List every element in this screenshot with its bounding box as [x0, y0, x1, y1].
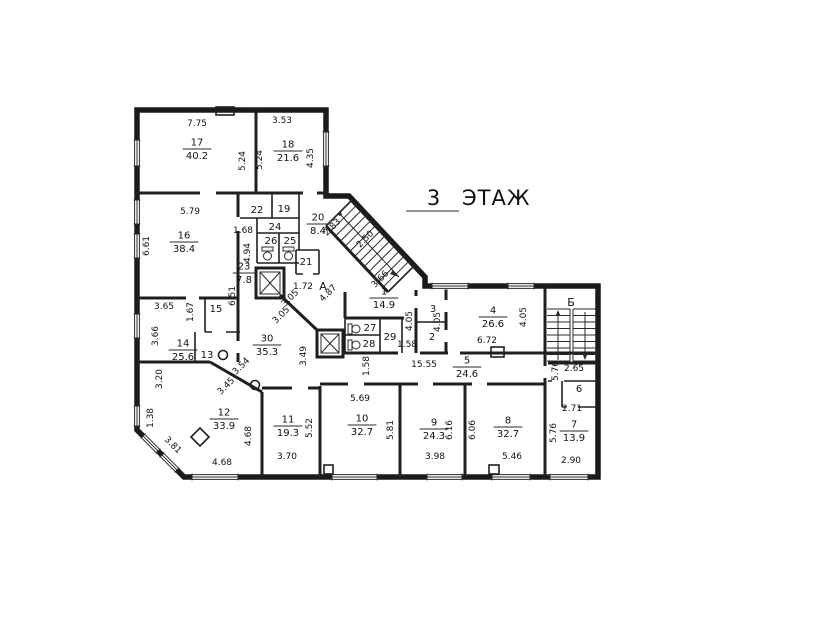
round-column — [219, 351, 228, 360]
dimension-label: 5.69 — [350, 394, 370, 404]
dimension-label: 4.05 — [519, 307, 529, 327]
toilet-icon — [348, 340, 360, 350]
room-number-6: 6 — [576, 384, 582, 395]
room-number-2: 2 — [429, 332, 435, 343]
floor-number: 3 — [427, 186, 441, 210]
room-label-10: 1032.7 — [348, 414, 377, 439]
svg-text:10: 10 — [356, 414, 369, 425]
room-label-1: 114.9 — [370, 287, 399, 312]
dimension-label: 5.46 — [502, 452, 522, 462]
svg-text:11: 11 — [282, 415, 295, 426]
dimension-label: 1.38 — [146, 408, 156, 428]
dimension-label: 1.72 — [293, 282, 313, 292]
svg-text:21.6: 21.6 — [277, 153, 299, 164]
dimension-label: 1.58 — [397, 340, 417, 350]
toilet-icon — [348, 324, 360, 334]
svg-text:4: 4 — [490, 306, 496, 317]
svg-text:8: 8 — [505, 416, 511, 427]
dimension-label: 6.61 — [142, 236, 152, 256]
room-number-21: 21 — [300, 257, 313, 268]
room-number-15: 15 — [210, 304, 223, 315]
pilaster — [489, 465, 499, 474]
toilet-icon — [262, 247, 273, 260]
svg-text:32.7: 32.7 — [351, 427, 373, 438]
svg-text:35.3: 35.3 — [256, 347, 278, 358]
room-number-28: 28 — [363, 339, 376, 350]
svg-text:24.3: 24.3 — [423, 431, 445, 442]
dimension-label: 6.16 — [445, 420, 455, 440]
dimension-label: 5.76 — [551, 361, 561, 381]
room-label-7: 713.9 — [560, 420, 589, 445]
dimension-label: 5.81 — [386, 420, 396, 440]
dimension-label: 6.06 — [468, 420, 478, 440]
drawing-title: 3 ЭТАЖ — [406, 186, 530, 211]
dimension-label: 5.52 — [305, 418, 315, 438]
dimension-label: 5.79 — [180, 207, 200, 217]
dimension-label: 1.68 — [233, 226, 253, 236]
room-label-8: 832.7 — [494, 416, 523, 441]
svg-text:33.9: 33.9 — [213, 421, 235, 432]
dimension-label: 7.75 — [187, 119, 207, 129]
svg-text:32.7: 32.7 — [497, 429, 519, 440]
dimension-label: 3.54 — [231, 356, 252, 377]
room-number-22: 22 — [251, 205, 264, 216]
toilet-icon — [283, 247, 294, 260]
svg-text:38.4: 38.4 — [173, 244, 195, 255]
dimension-label: 4.05 — [405, 311, 415, 331]
axis-letter-А: А — [319, 280, 327, 293]
svg-text:9: 9 — [431, 418, 437, 429]
svg-text:24.6: 24.6 — [456, 369, 478, 380]
room-label-4: 426.6 — [479, 306, 508, 331]
dimension-label: 3.49 — [299, 346, 309, 366]
room-label-23: 237.8 — [233, 262, 256, 287]
room-label-17: 1740.2 — [183, 138, 212, 163]
room-label-16: 1638.4 — [170, 231, 199, 256]
dimension-label: 3.45 — [216, 376, 237, 397]
room-number-29: 29 — [384, 332, 397, 343]
floor-plan-page: 3 ЭТАЖ 1740.21821.61638.4208.4237.81425.… — [0, 0, 823, 617]
svg-text:7: 7 — [571, 420, 577, 431]
dimension-label: 2.65 — [564, 364, 584, 374]
dimension-label: 3.05 — [271, 305, 292, 326]
svg-text:25.6: 25.6 — [172, 352, 194, 363]
dimension-label: 4.05 — [433, 312, 443, 332]
dimension-label: 3.70 — [277, 452, 297, 462]
dimension-label: 5.76 — [549, 423, 559, 443]
dimension-label: 5.24 — [255, 150, 265, 170]
dimension-label: 2.50 — [355, 229, 376, 250]
svg-text:13.9: 13.9 — [563, 433, 585, 444]
room-label-5: 524.6 — [453, 356, 482, 381]
dimension-label: 3.81 — [162, 435, 183, 456]
dimension-label: 3.20 — [155, 369, 165, 389]
svg-text:1: 1 — [381, 287, 387, 298]
svg-text:17: 17 — [191, 138, 204, 149]
dimension-label: 3.98 — [425, 452, 445, 462]
dimension-label: 3.66 — [151, 326, 161, 346]
dimension-label: 3.65 — [154, 302, 174, 312]
dimension-label: 6.51 — [228, 286, 238, 306]
axis-letter-Б: Б — [567, 296, 575, 309]
svg-text:18: 18 — [282, 140, 295, 151]
dimension-label: 4.68 — [244, 426, 254, 446]
room-label-30: 3035.3 — [253, 334, 282, 359]
svg-text:26.6: 26.6 — [482, 319, 504, 330]
floor-word: ЭТАЖ — [462, 186, 530, 210]
svg-text:19.3: 19.3 — [277, 428, 299, 439]
dimension-label: 4.35 — [306, 148, 316, 168]
room-label-12: 1233.9 — [210, 408, 239, 433]
dimension-label: 4.68 — [212, 458, 232, 468]
svg-text:12: 12 — [218, 408, 231, 419]
dimension-label: 6.72 — [477, 336, 497, 346]
svg-text:7.8: 7.8 — [236, 275, 252, 286]
diamond-column — [191, 428, 209, 446]
svg-text:30: 30 — [261, 334, 274, 345]
dimension-label: 2.71 — [562, 404, 582, 414]
room-number-24: 24 — [269, 222, 282, 233]
room-number-27: 27 — [364, 323, 377, 334]
room-number-25: 25 — [284, 236, 297, 247]
dimension-label: 1.67 — [186, 302, 196, 322]
svg-text:14.9: 14.9 — [373, 300, 395, 311]
svg-text:5: 5 — [464, 356, 470, 367]
dimension-label: 15.55 — [411, 360, 437, 370]
dimension-label: 4.94 — [243, 243, 253, 263]
svg-text:40.2: 40.2 — [186, 151, 208, 162]
dimension-label: 1.58 — [362, 356, 372, 376]
labels: 1740.21821.61638.4208.4237.81425.63035.3… — [142, 116, 588, 468]
dimension-label: 5.24 — [238, 151, 248, 171]
room-number-13: 13 — [201, 350, 214, 361]
room-label-11: 1119.3 — [274, 415, 303, 440]
pilaster — [324, 465, 333, 474]
svg-text:16: 16 — [178, 231, 191, 242]
room-label-18: 1821.6 — [274, 140, 303, 165]
floor-plan-drawing: 3 ЭТАЖ 1740.21821.61638.4208.4237.81425.… — [0, 0, 823, 617]
svg-text:14: 14 — [177, 339, 190, 350]
dimension-label: 2.90 — [561, 456, 581, 466]
svg-text:20: 20 — [312, 213, 325, 224]
dimension-label: 3.53 — [272, 116, 292, 126]
room-label-14: 1425.6 — [169, 339, 198, 364]
room-number-19: 19 — [278, 204, 291, 215]
room-number-26: 26 — [265, 236, 278, 247]
